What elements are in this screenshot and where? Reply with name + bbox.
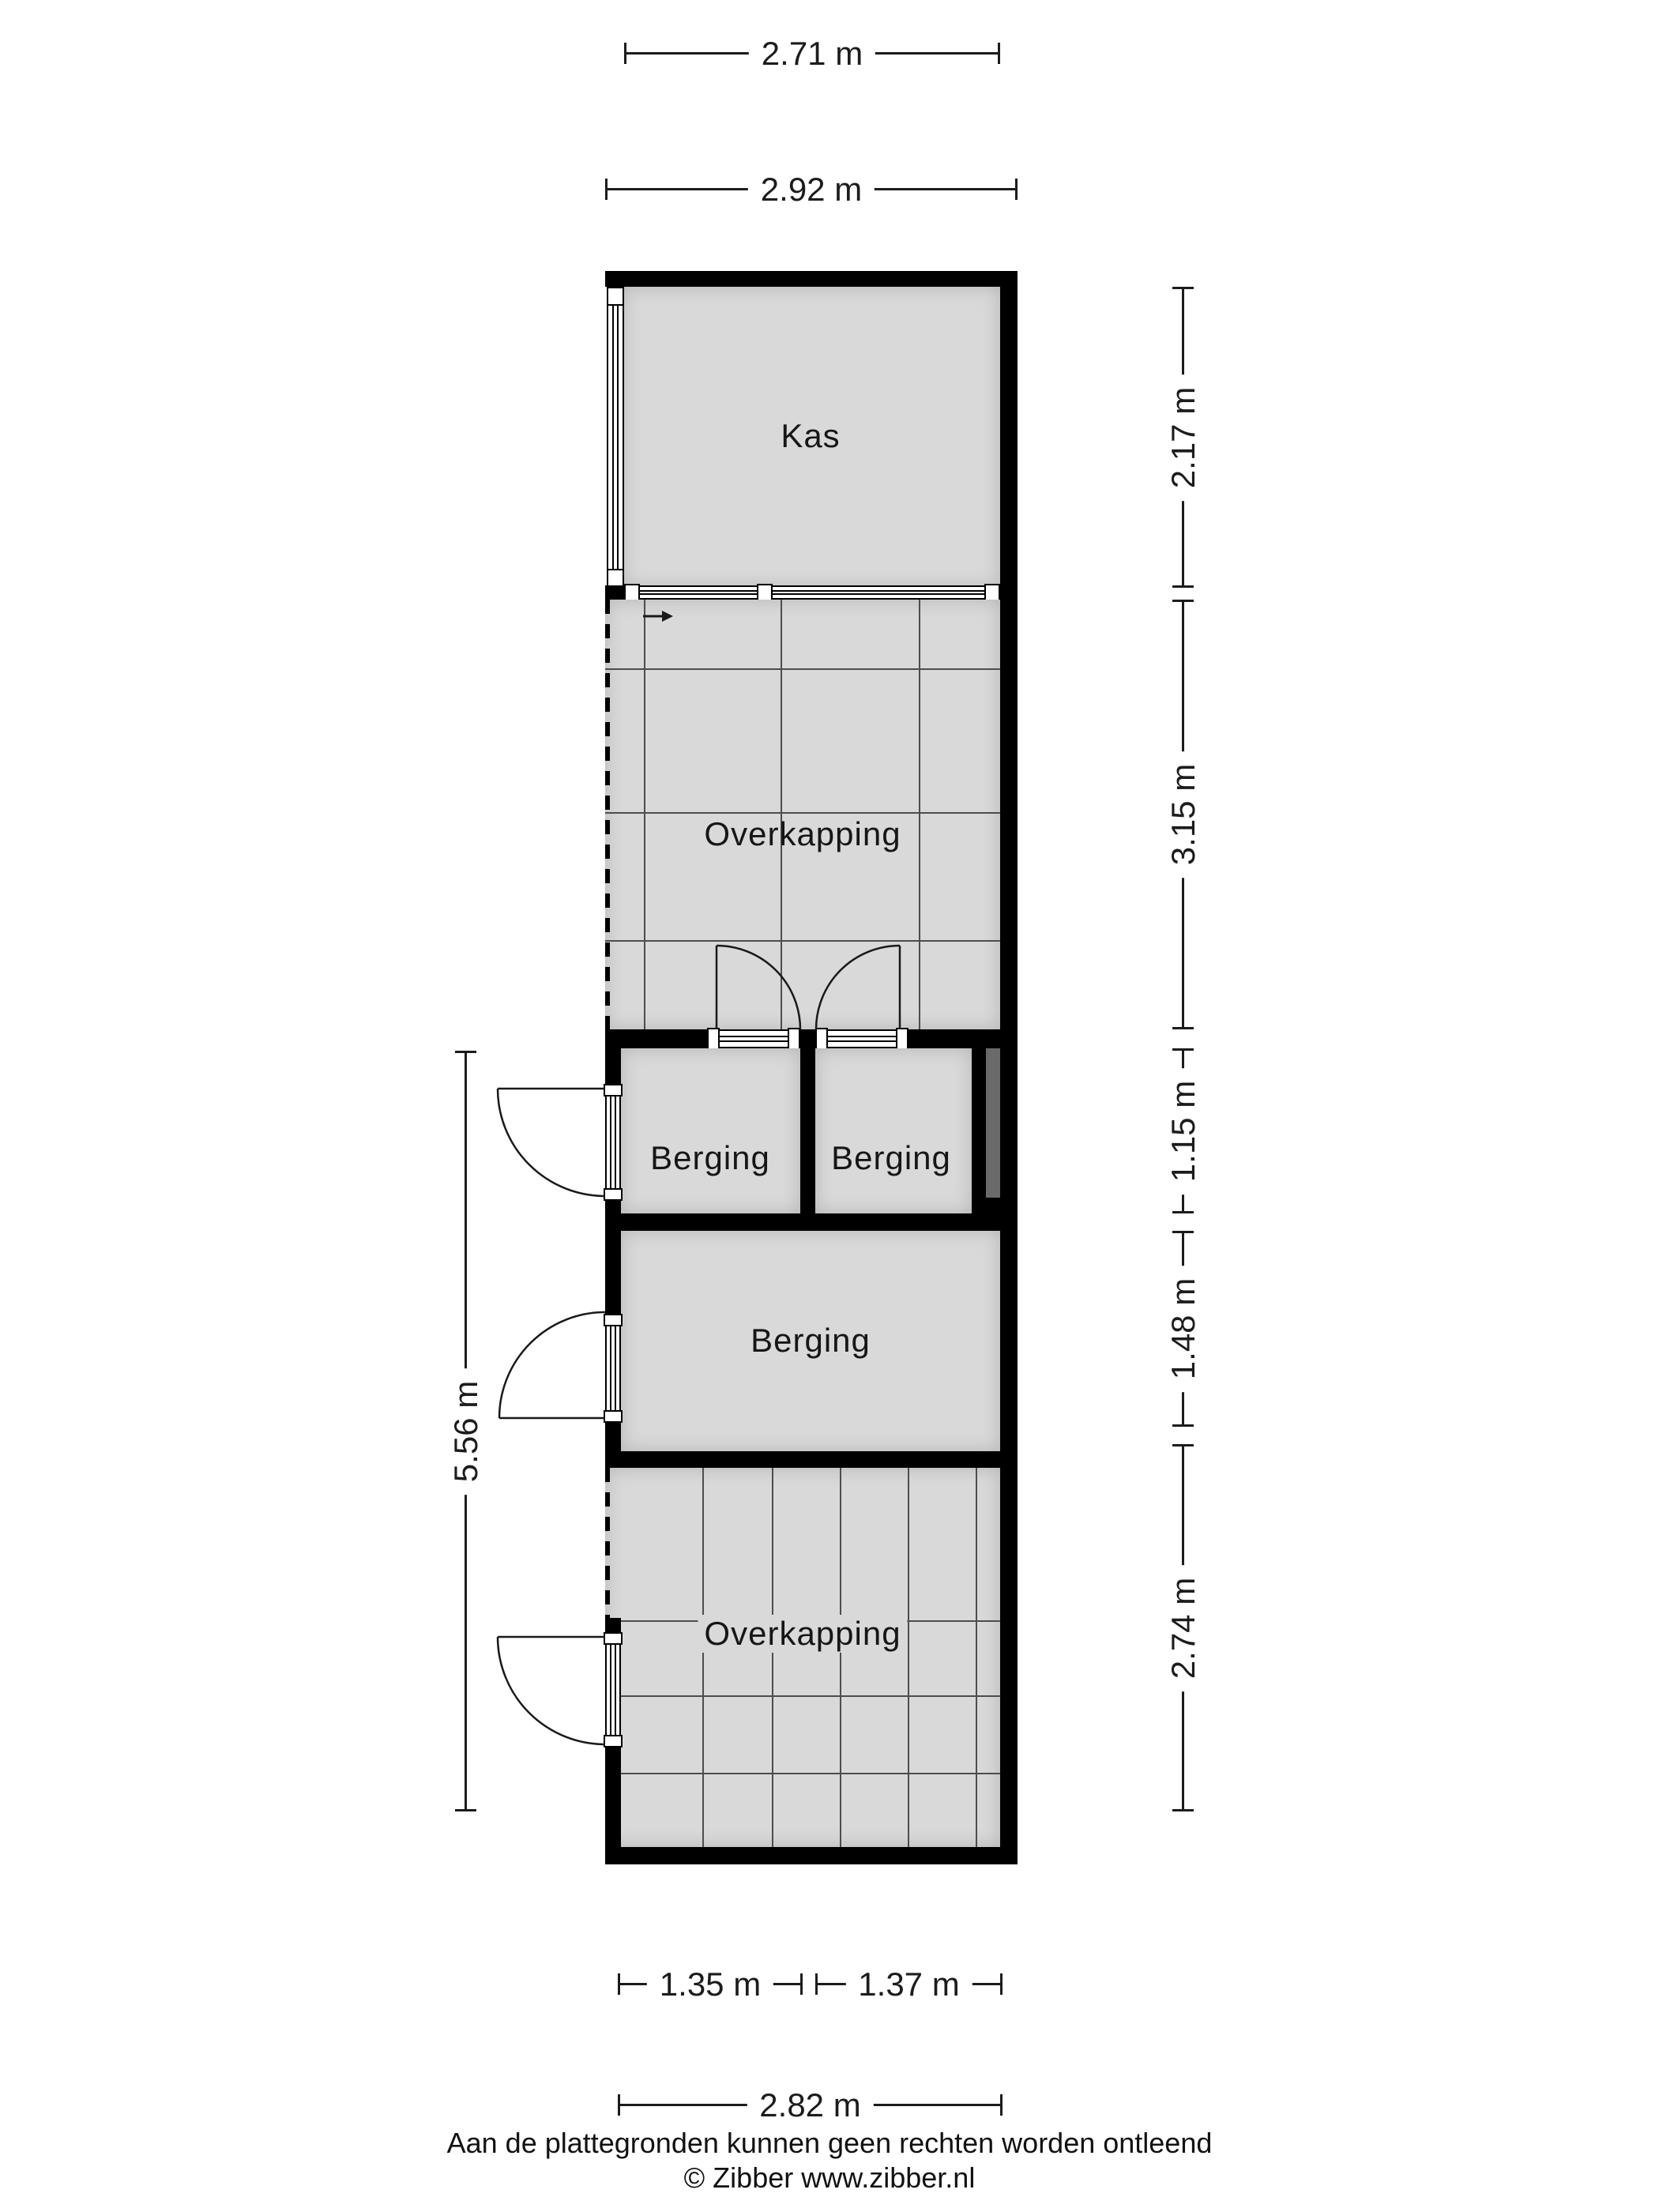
dimension-label: 1.35 m (647, 1964, 773, 2005)
room-label-overkapping-top: Overkapping (704, 815, 901, 853)
floor-plan-page: 2.71 m 2.92 m Kas Overkapping Berging Be… (0, 0, 1659, 2212)
dimension-label: 5.56 m (446, 1367, 487, 1494)
floor-grid-line (605, 1773, 1000, 1774)
door-threshold-right (815, 1029, 908, 1048)
dimension-berging-large-height: 1.48 m (1182, 1231, 1184, 1427)
floor-grid-line (840, 1468, 841, 1847)
wall-segment (605, 1048, 621, 1084)
door-jamb (604, 1735, 623, 1747)
floor-grid-line (702, 1468, 704, 1847)
wall-stub (800, 1029, 815, 1048)
dimension-label: 2.17 m (1163, 374, 1204, 500)
exterior-door-threshold (605, 1632, 621, 1747)
dimension-label: 1.37 m (845, 1964, 972, 2005)
door-jamb (604, 1188, 623, 1201)
wall-segment (605, 1747, 621, 1847)
door-jamb (707, 1028, 720, 1050)
window-mullion (757, 584, 773, 601)
room-label-berging-left: Berging (650, 1139, 770, 1177)
wall-segment (972, 1048, 986, 1213)
dimension-bottom-total-width: 2.82 m (618, 2104, 1003, 2106)
kas-bottom-window (624, 585, 1000, 600)
dimension-berging-row-height: 1.15 m (1182, 1048, 1184, 1213)
floor-grid-line (919, 600, 920, 1029)
floor-grid-line (605, 668, 1000, 670)
floor-grid-line (644, 600, 645, 1029)
wall-horizontal (605, 1213, 1018, 1231)
shaft-space (986, 1048, 1000, 1198)
floor-grid-line (908, 1468, 909, 1847)
wall-segment (908, 1029, 1000, 1048)
window-cap (607, 287, 624, 306)
bottom-outer-wall (605, 1847, 1018, 1864)
room-label-overkapping-bottom: Overkapping (698, 1615, 907, 1653)
window-cap (984, 584, 1000, 601)
dimension-label: 2.92 m (748, 169, 875, 210)
door-jamb (604, 1314, 623, 1326)
floor-grid-line (605, 812, 1000, 814)
floor-grid-line (605, 940, 1000, 942)
door-swing-arc (499, 1312, 605, 1418)
door-jamb (604, 1632, 623, 1645)
wall-horizontal (605, 1451, 1018, 1468)
room-label-berging-large: Berging (750, 1322, 871, 1360)
wall-segment (605, 1618, 621, 1632)
door-jamb (896, 1028, 908, 1050)
kas-top-wall (605, 271, 1018, 287)
dimension-label: 2.71 m (749, 33, 875, 74)
dimension-label: 3.15 m (1163, 751, 1204, 878)
door-jamb (788, 1028, 800, 1050)
overkapping-open-edge-dashed (605, 600, 610, 1029)
wall-stub (605, 585, 624, 600)
room-berging-left (621, 1048, 800, 1213)
exterior-door-threshold (605, 1084, 621, 1201)
dimension-berging-left-width: 1.35 m (618, 1983, 803, 1985)
window-cap (624, 584, 640, 601)
wall-stub (986, 1198, 1000, 1213)
floor-grid-line (781, 600, 782, 1029)
dimension-label: 2.74 m (1163, 1564, 1204, 1691)
overkapping-open-edge-dashed (605, 1468, 610, 1618)
wall-segment (605, 1423, 621, 1451)
wall-segment (605, 1029, 707, 1048)
dimension-berging-right-width: 1.37 m (815, 1983, 1003, 1985)
floor-grid-line (772, 1468, 773, 1847)
wall-segment (605, 1231, 621, 1314)
dimension-label: 1.48 m (1163, 1266, 1204, 1392)
room-overkapping-top (605, 600, 1000, 1029)
footer-credit: © Zibber www.zibber.nl (0, 2161, 1659, 2195)
dimension-kas-outer-width: 2.92 m (605, 188, 1018, 190)
door-jamb (604, 1084, 623, 1097)
door-swing-arc (498, 1089, 605, 1196)
dimension-overkapping-bottom-height: 2.74 m (1182, 1444, 1184, 1811)
dimension-left-total: 5.56 m (465, 1051, 467, 1811)
wall-segment (605, 1201, 621, 1213)
door-jamb (604, 1410, 623, 1423)
room-label-kas: Kas (781, 417, 840, 455)
berging-divider-wall (800, 1048, 815, 1213)
door-swing-arc (498, 1637, 605, 1744)
door-threshold-left (707, 1029, 800, 1048)
dimension-kas-inner-width: 2.71 m (624, 52, 1000, 55)
kas-left-window (607, 287, 624, 588)
floor-grid-line (976, 1468, 977, 1847)
exterior-door-threshold (605, 1314, 621, 1423)
room-overkapping-bottom (605, 1468, 1000, 1847)
dimension-label: 1.15 m (1163, 1067, 1204, 1194)
dimension-kas-height: 2.17 m (1182, 287, 1184, 588)
door-jamb (815, 1028, 828, 1050)
floor-grid-line (605, 1695, 1000, 1697)
dimension-label: 2.82 m (747, 2085, 873, 2126)
dimension-overkapping-top-height: 3.15 m (1182, 600, 1184, 1029)
room-label-berging-right: Berging (831, 1139, 951, 1177)
footer-disclaimer: Aan de plattegronden kunnen geen rechten… (0, 2127, 1659, 2160)
room-berging-right (815, 1048, 972, 1213)
right-outer-wall (1000, 271, 1018, 1864)
